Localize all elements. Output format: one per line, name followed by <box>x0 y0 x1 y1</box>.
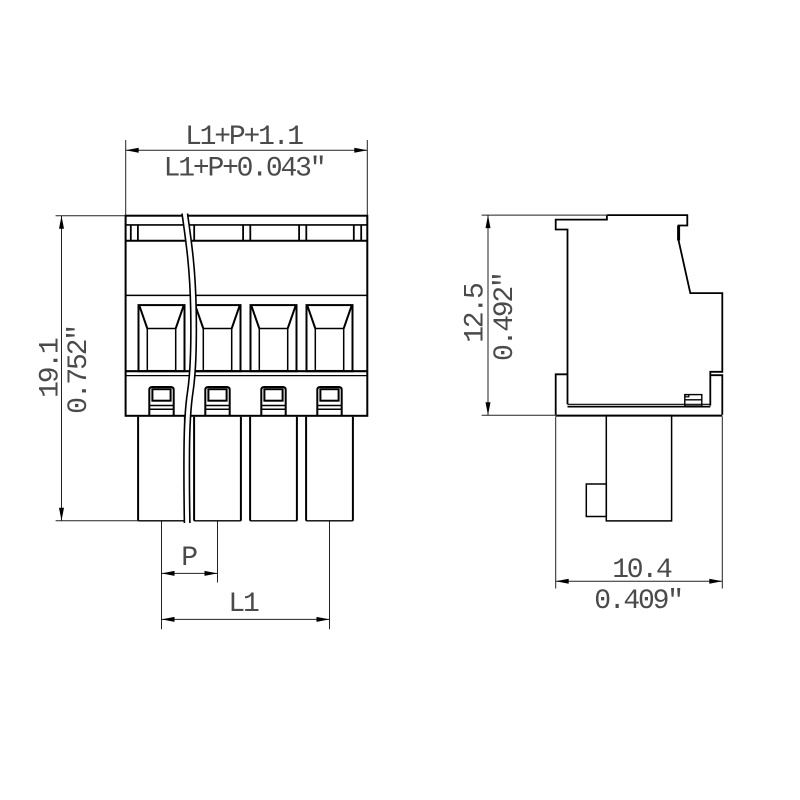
svg-text:10.4: 10.4 <box>612 555 672 586</box>
svg-text:P: P <box>181 543 197 574</box>
svg-text:0.409": 0.409" <box>594 586 682 617</box>
svg-text:L1: L1 <box>228 589 259 620</box>
svg-text:L1+P+0.043": L1+P+0.043" <box>164 154 325 185</box>
svg-text:L1+P+1.1: L1+P+1.1 <box>185 122 303 153</box>
svg-text:0.492": 0.492" <box>490 273 521 361</box>
svg-text:12.5: 12.5 <box>461 283 492 343</box>
svg-text:19.1: 19.1 <box>36 338 67 398</box>
svg-text:0.752": 0.752" <box>64 326 95 414</box>
